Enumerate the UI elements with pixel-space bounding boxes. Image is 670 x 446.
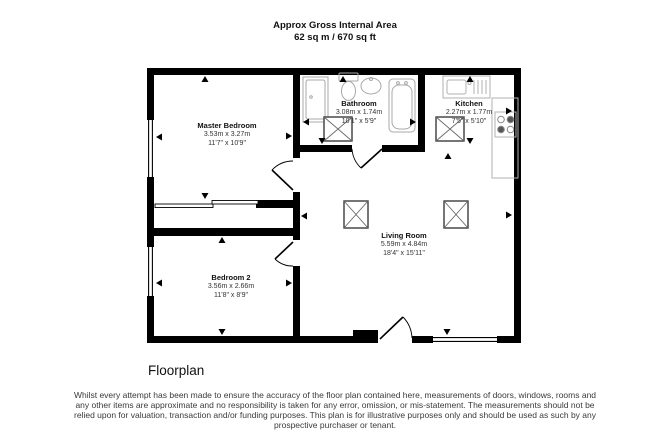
floorplan-page: Approx Gross Internal Area 62 sq m / 670… <box>0 0 670 446</box>
label-master-bedroom: Master Bedroom 3.53m x 3.27m 11'7" x 10'… <box>157 121 297 148</box>
room-size-metric: 3.08m x 1.74m <box>300 108 418 117</box>
room-size-imperial: 7'5" x 5'10" <box>410 117 528 126</box>
room-size-metric: 5.59m x 4.84m <box>344 240 464 249</box>
label-bathroom: Bathroom 3.08m x 1.74m 10'1" x 5'9" <box>300 99 418 126</box>
basin-icon <box>361 78 381 95</box>
label-living-room: Living Room 5.59m x 4.84m 18'4" x 15'11" <box>344 231 464 258</box>
bedroom2-window <box>147 247 154 296</box>
disclaimer-line1: Whilst every attempt has been made to en… <box>0 390 670 400</box>
disclaimer-text: Whilst every attempt has been made to en… <box>0 390 670 430</box>
room-name: Bedroom 2 <box>161 273 301 282</box>
bedroom2-door <box>275 242 293 266</box>
room-size-metric: 2.27m x 1.77m <box>410 108 528 117</box>
living-room-window <box>433 336 497 343</box>
toilet-icon <box>339 73 358 101</box>
room-size-metric: 3.56m x 2.66m <box>161 282 301 291</box>
room-size-imperial: 10'1" x 5'9" <box>300 117 418 126</box>
floorplan-drawing <box>0 0 670 446</box>
master-bedroom-window <box>147 120 154 177</box>
disclaimer-line4: prospective purchaser or tenant. <box>0 420 670 430</box>
floorplan-caption: Floorplan <box>148 363 204 378</box>
room-size-imperial: 11'7" x 10'9" <box>157 139 297 148</box>
disclaimer-line2: any other items are approximate and no r… <box>0 400 670 410</box>
kitchen-sink-icon <box>443 76 490 98</box>
room-size-metric: 3.53m x 3.27m <box>157 130 297 139</box>
label-kitchen: Kitchen 2.27m x 1.77m 7'5" x 5'10" <box>410 99 528 126</box>
label-bedroom-2: Bedroom 2 3.56m x 2.66m 11'8" x 8'9" <box>161 273 301 300</box>
skylight-living-1 <box>344 201 368 228</box>
room-name: Living Room <box>344 231 464 240</box>
bathroom-door <box>352 149 382 168</box>
room-size-imperial: 11'8" x 8'9" <box>161 291 301 300</box>
sliding-wardrobe-doors <box>155 201 258 208</box>
room-name: Bathroom <box>300 99 418 108</box>
disclaimer-line3: relied upon for valuation, transaction a… <box>0 410 670 420</box>
entrance-door <box>380 317 412 339</box>
master-bedroom-door <box>272 161 293 190</box>
skylight-living-2 <box>444 201 468 228</box>
room-name: Kitchen <box>410 99 528 108</box>
room-size-imperial: 18'4" x 15'11" <box>344 249 464 258</box>
room-name: Master Bedroom <box>157 121 297 130</box>
